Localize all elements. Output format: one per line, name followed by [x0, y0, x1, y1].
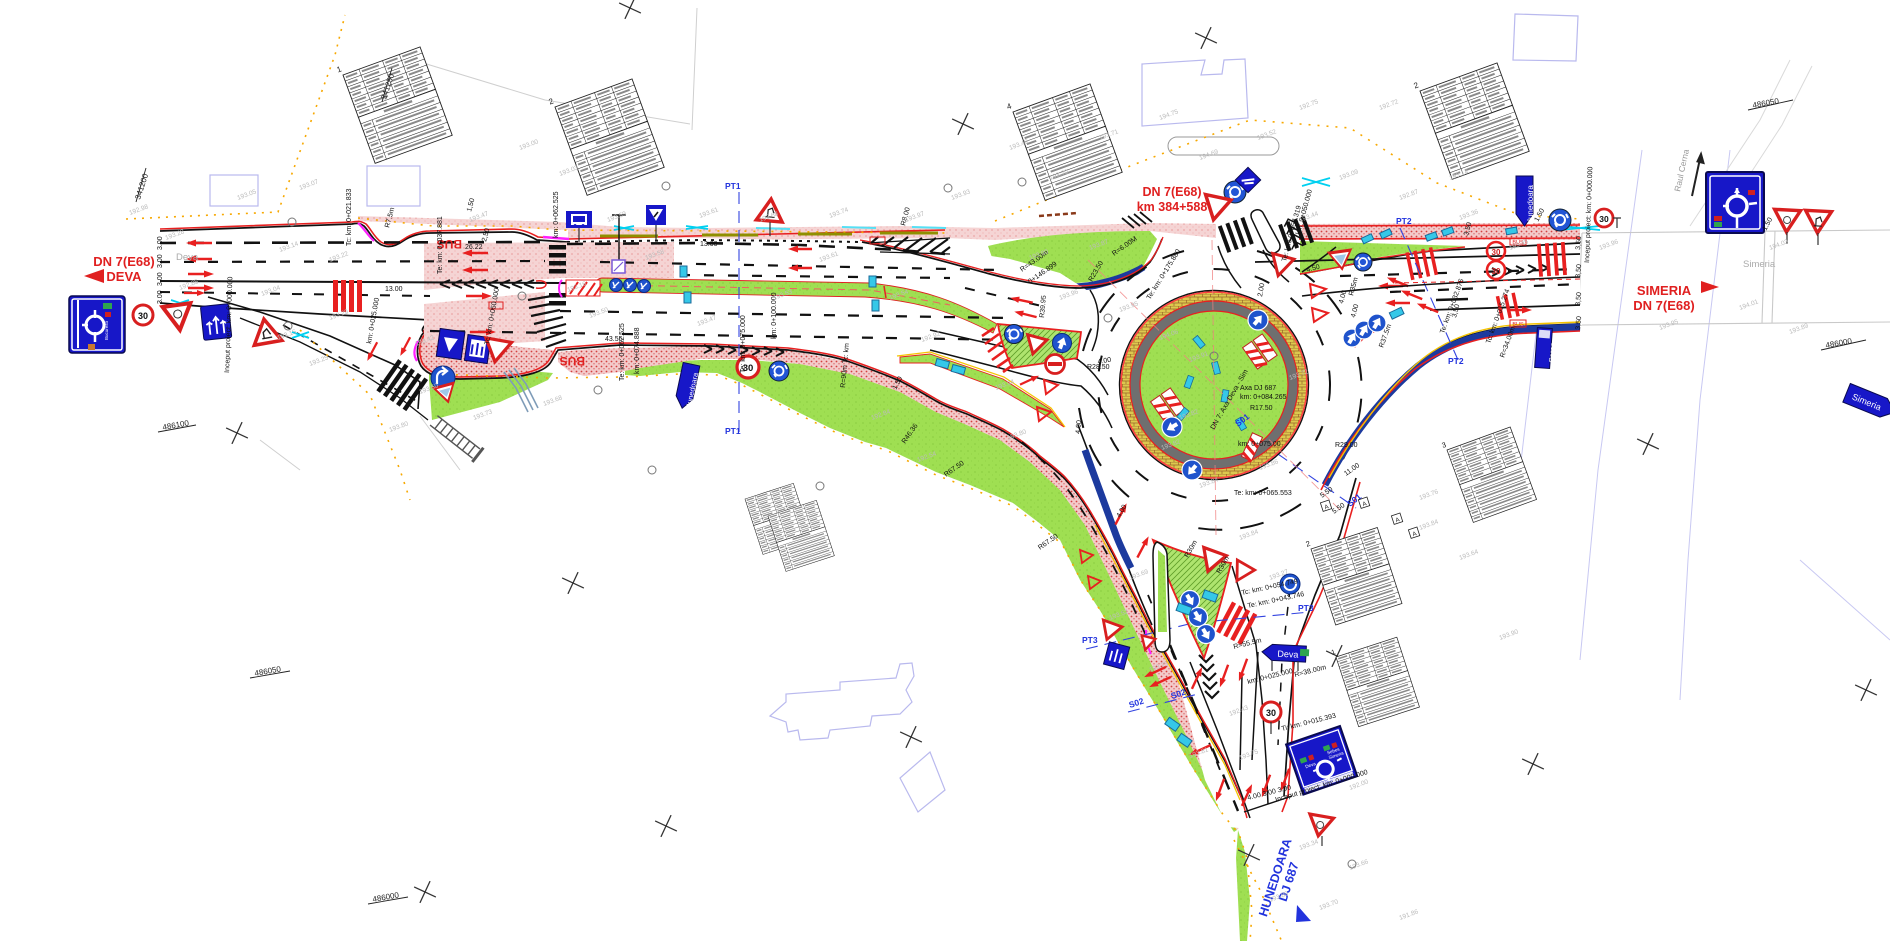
svg-text:DN 7(E68): DN 7(E68) — [1142, 185, 1201, 199]
svg-text:Deva: Deva — [1277, 649, 1299, 660]
svg-text:km: 0+074.888: km: 0+074.888 — [634, 327, 641, 374]
svg-text:DN 7(E68): DN 7(E68) — [1633, 298, 1694, 313]
svg-text:3.00: 3.00 — [157, 272, 164, 286]
svg-text:13.00: 13.00 — [385, 286, 403, 293]
svg-text:R17.50: R17.50 — [1250, 405, 1273, 412]
svg-text:Deva: Deva — [176, 252, 199, 263]
svg-text:BUS: BUS — [560, 354, 585, 368]
svg-text:DN 7(E68): DN 7(E68) — [93, 254, 154, 269]
svg-text:Te: km: 0+065.553: Te: km: 0+065.553 — [1234, 490, 1292, 497]
svg-text:13.00: 13.00 — [700, 241, 718, 248]
svg-text:Te: km: 0+075.000: Te: km: 0+075.000 — [740, 315, 747, 373]
svg-text:Axa DJ 687: Axa DJ 687 — [1240, 385, 1276, 392]
svg-text:Bucuresti: Bucuresti — [104, 321, 109, 340]
svg-text:4.00: 4.00 — [1075, 420, 1083, 434]
svg-text:km: 0+084.265: km: 0+084.265 — [1240, 394, 1287, 401]
svg-text:PT1: PT1 — [725, 181, 741, 191]
svg-text:30: 30 — [1492, 248, 1501, 257]
svg-text:km: 0+062.525: km: 0+062.525 — [553, 191, 560, 238]
svg-text:R29.00: R29.00 — [1335, 442, 1358, 449]
svg-text:30: 30 — [1266, 708, 1276, 718]
svg-text:Cerna: Cerna — [1547, 341, 1557, 363]
svg-text:Te: km: 0+037.881: Te: km: 0+037.881 — [437, 216, 444, 274]
svg-text:Te: km: 0+062.525: Te: km: 0+062.525 — [619, 323, 626, 381]
svg-text:PT3: PT3 — [1298, 603, 1314, 613]
svg-text:km: 0+075.00: km: 0+075.00 — [1238, 441, 1281, 448]
svg-text:3.00: 3.00 — [157, 254, 164, 268]
svg-text:30: 30 — [1599, 214, 1609, 224]
svg-text:PT2: PT2 — [1396, 216, 1412, 226]
svg-text:30: 30 — [138, 311, 148, 321]
svg-text:3,50: 3,50 — [1575, 292, 1583, 306]
svg-text:3,50: 3,50 — [1575, 264, 1583, 278]
svg-text:km 384+588: km 384+588 — [1137, 200, 1208, 214]
svg-text:3.00: 3.00 — [157, 290, 164, 304]
svg-text:3.00: 3.00 — [157, 236, 164, 250]
svg-text:Tc: km: 0+021.833: Tc: km: 0+021.833 — [346, 188, 353, 246]
svg-text:Simeria: Simeria — [1743, 259, 1776, 270]
svg-text:26.22: 26.22 — [465, 244, 483, 251]
svg-text:3,50: 3,50 — [1575, 316, 1583, 330]
svg-text:PT1: PT1 — [725, 426, 741, 436]
svg-text:DEVA: DEVA — [106, 269, 142, 284]
svg-text:PT2: PT2 — [1448, 356, 1464, 366]
svg-text:PT3: PT3 — [1082, 635, 1098, 645]
svg-text:3,50: 3,50 — [1575, 236, 1583, 250]
svg-text:SIMERIA: SIMERIA — [1637, 283, 1692, 298]
svg-text:30: 30 — [1492, 267, 1501, 276]
